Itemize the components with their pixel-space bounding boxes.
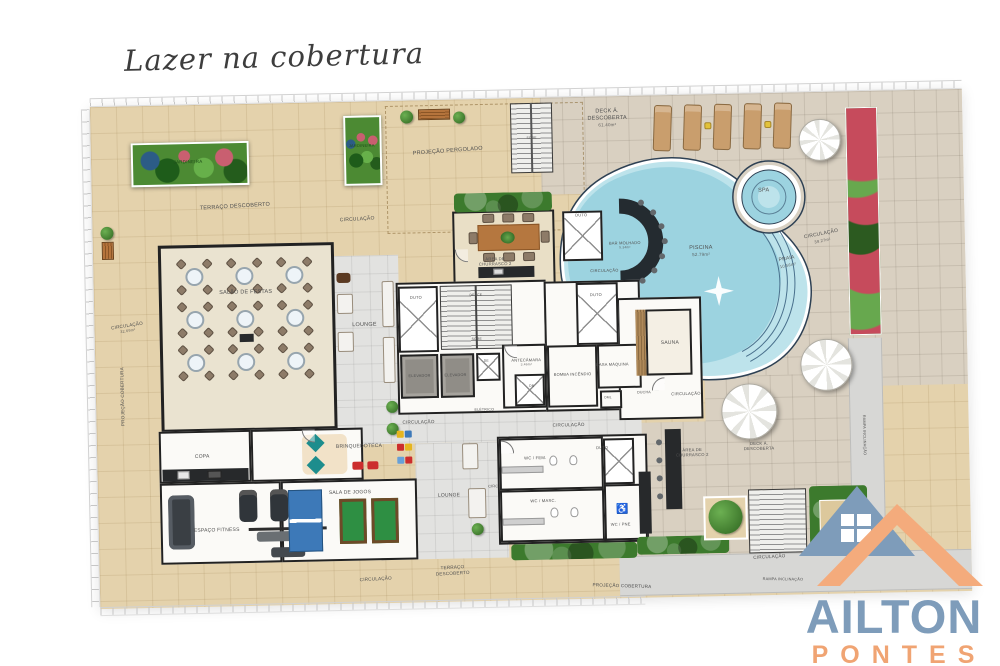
label-rampa-direita: RAMPA INCLINAÇÃO [861,415,867,456]
brand-logo: AILTON PONTES [788,484,1000,664]
label-salao-de-festas: SALÃO DE FESTAS [219,289,272,297]
label-projecao-pergolado: PROJEÇÃO PERGOLADO [413,146,484,158]
label-elevador-1: ELEVADOR [408,374,430,379]
label-casa-maquina: CASA MÁQUINA [595,361,629,367]
label-projecao-cobertura-esquerda: PROJEÇÃO COBERTURA [119,367,126,426]
label-lounge-2: LOUNGE [438,492,460,499]
label-praia: PRAIA10.56m² [778,254,796,269]
label-espaco-fitness: ESPAÇO FITNESS [194,527,240,534]
label-lounge-1: LOUNGE [352,322,377,330]
label-terraco-descoberto-inferior: TERRAÇO DESCOBERTO [427,563,478,578]
label-duto-bar: DUTO [575,212,587,217]
logo-name: AILTON [788,593,1000,640]
label-jardineira-1: JARDINEIRA [174,159,203,165]
label-bar-molhado: BAR MOLHADO5.34m² [608,240,642,250]
label-sobe-escada: SOBE [472,337,482,342]
label-duto-core: DUTO [410,295,422,300]
label-circulacao-wc: CIRCULAÇÃO [552,422,584,429]
label-deck-descoberta-1: DECK Á. DESCOBERTA61.40m² [580,108,634,129]
label-circulacao-sauna: CIRCULAÇÃO [671,391,701,397]
label-projecao-cobertura-inferior: PROJEÇÃO COBERTURA [592,582,651,590]
label-circulacao-inferior-esquerda: CIRCULAÇÃO [360,575,392,583]
label-wc-fem: WC / FEM. [524,455,546,461]
label-desce-escada: DESCE [469,293,482,298]
label-terraco-descoberto-top: TERRAÇO DESCOBERTO [200,202,271,213]
label-dml: DML [604,395,611,399]
label-elevador-2: ELEVADOR [444,373,466,378]
label-spa: SPA [758,187,769,194]
label-copa: COPA [195,454,210,461]
label-piscina: PISCINA52.79m² [689,245,713,258]
label-circulacao-esquerda: CIRCULAÇÃO32.69m² [111,321,144,337]
label-area-churrasco-2: ÁREA DE CHURRASCO 2 [670,447,714,459]
label-jardineira-2: JARDINEIRA [349,143,375,149]
label-antecamara: ANTECÂMARA3.46m² [511,357,541,367]
house-icon [799,484,989,588]
label-circulacao-top: CIRCULAÇÃO [340,215,375,223]
label-area-churrasco-1: ÁREA DE CHURRASCO 2 [471,256,519,268]
floor-plan-page: Lazer na cobertura [0,0,1000,666]
label-duto-wc: DUTO [596,445,608,450]
label-wc-masc: WC / MASC. [530,498,556,504]
label-deck-descoberta-2: DECK Á. DESCOBERTA [736,440,782,452]
label-ducha: DUCHA [637,390,651,395]
label-dn: DN [529,384,534,389]
label-sobe-escada-externa: SOBE [526,136,536,141]
label-de: DE [484,359,489,364]
label-brinquedoteca: BRINQUEDOTECA [336,443,382,450]
label-circulacao-inferior-direita: CIRCULAÇÃO [753,553,785,561]
page-title: Lazer na cobertura [124,36,425,78]
label-circulacao-core: CIRCULAÇÃO [402,419,434,426]
label-sauna: SAUNA [661,340,679,347]
label-bomba-incendio: BOMBA INCÊNDIO [553,371,591,377]
label-eletrico: ELÉTRICO [474,407,494,412]
label-circulacao-direita: CIRCULAÇÃO39.27m² [804,228,840,246]
label-duto-direita: DUTO [590,292,602,297]
label-wc-pne: WC / PNE [611,521,631,527]
label-circ: CIRC. [488,484,499,489]
label-sala-de-jogos: SALA DE JOGOS [329,489,371,496]
logo-surname: PONTES [798,643,1000,666]
label-circulacao-bar: CIRCULAÇÃO [590,268,618,274]
